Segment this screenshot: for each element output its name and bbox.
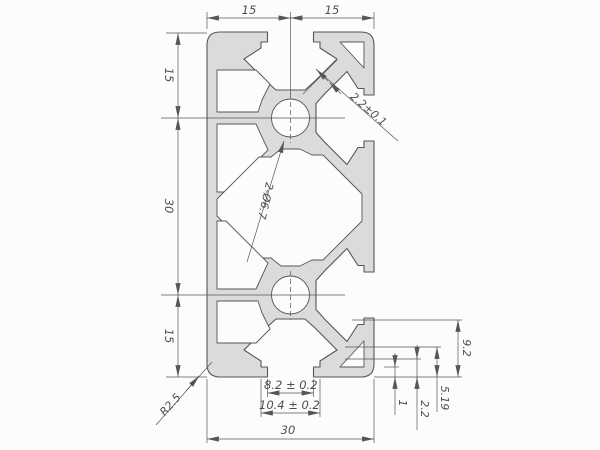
dim-left-15b: 15 <box>162 329 176 344</box>
dim-top-right: 15 <box>325 3 340 17</box>
label-wall-thickness: 2.2±0.1 <box>347 90 389 129</box>
label-corner-radius: R2.5 <box>157 391 183 418</box>
dim-right-9-2: 9.2 <box>460 339 473 357</box>
dim-slot-opening: 8.2 ± 0.2 <box>264 378 318 392</box>
dim-left-30: 30 <box>162 199 176 214</box>
dim-top-left: 15 <box>242 3 257 17</box>
dim-overall-width: 30 <box>281 423 296 437</box>
technical-drawing: 15 15 15 30 15 8.2 ± 0.2 10.4 ± 0.2 30 9… <box>0 0 600 450</box>
leader-radius-arrow <box>186 376 199 391</box>
dim-left-15a: 15 <box>162 68 176 83</box>
dim-right-2-2: 2.2 <box>418 400 431 418</box>
dim-right-1: 1 <box>396 400 409 407</box>
dim-right-5-19: 5.19 <box>438 386 451 411</box>
leader-wall-arrow2 <box>330 83 342 95</box>
dim-slot-undercut: 10.4 ± 0.2 <box>259 398 320 412</box>
